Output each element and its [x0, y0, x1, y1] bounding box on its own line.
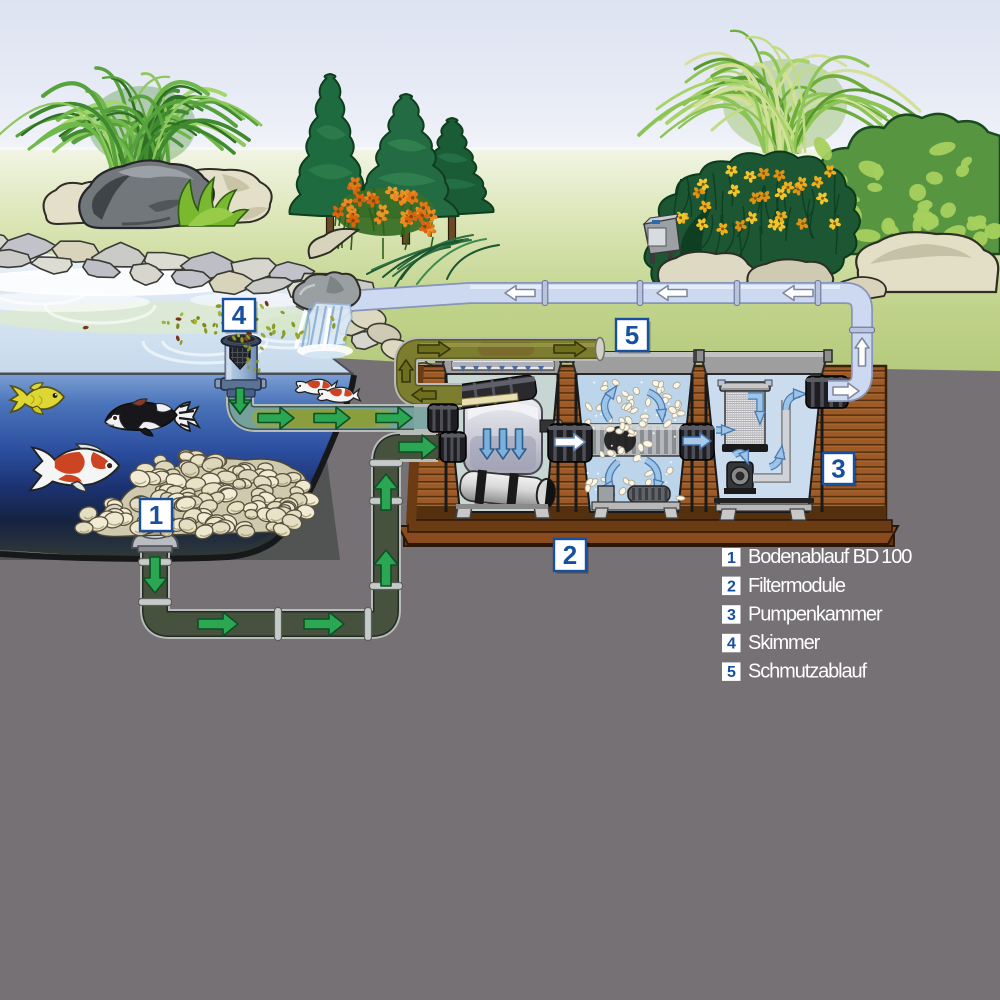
- svg-text:5: 5: [727, 664, 736, 681]
- svg-text:Bodenablauf BD 100: Bodenablauf BD 100: [748, 546, 912, 568]
- svg-text:5: 5: [625, 320, 639, 350]
- svg-text:4: 4: [727, 636, 736, 653]
- svg-text:3: 3: [831, 454, 845, 484]
- svg-text:3: 3: [727, 607, 736, 624]
- svg-text:2: 2: [727, 578, 736, 595]
- svg-text:1: 1: [727, 550, 736, 567]
- svg-text:2: 2: [563, 540, 577, 570]
- svg-text:1: 1: [149, 500, 163, 530]
- svg-text:Filtermodule: Filtermodule: [748, 575, 846, 597]
- svg-text:Skimmer: Skimmer: [748, 632, 821, 654]
- svg-text:4: 4: [232, 300, 247, 330]
- svg-text:Pumpenkammer: Pumpenkammer: [748, 603, 883, 625]
- svg-text:Schmutzablauf: Schmutzablauf: [748, 661, 868, 683]
